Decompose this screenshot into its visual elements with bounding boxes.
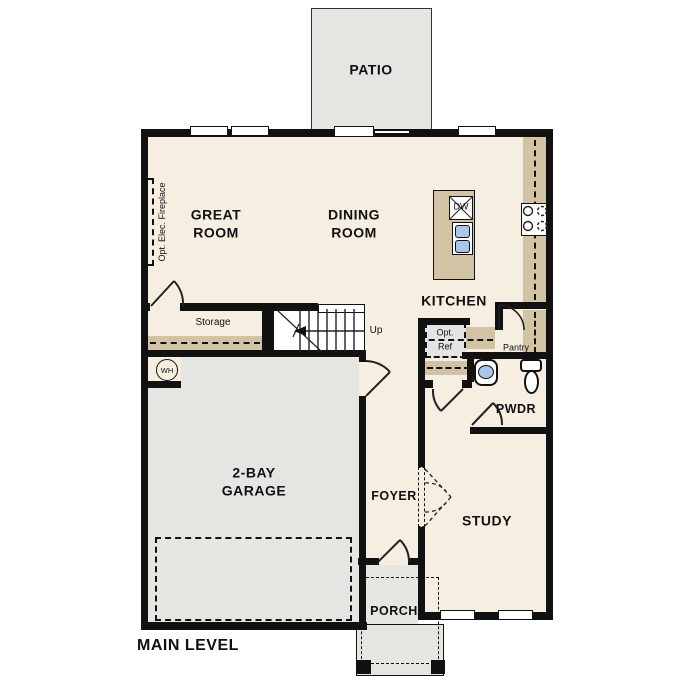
- wall-right: [546, 129, 553, 620]
- wall-hall-right: [418, 318, 425, 430]
- opt-ref-label: Opt. Ref: [436, 326, 453, 355]
- sliding-door-panel: [334, 126, 374, 137]
- wall-segment: [141, 303, 150, 311]
- porch-roofline-dashed: [361, 577, 439, 664]
- water-heater: WH: [156, 359, 178, 381]
- wall-segment: [262, 311, 273, 352]
- wall-segment: [148, 381, 181, 388]
- coat-shelf-rod: [427, 367, 470, 369]
- porch-post: [357, 660, 371, 674]
- storage-label: Storage: [195, 317, 230, 330]
- porch-label: PORCH: [370, 604, 418, 620]
- window: [458, 126, 496, 136]
- mud-counter-dash: [419, 339, 493, 341]
- wall-garage-top: [141, 350, 366, 357]
- wall-segment: [180, 303, 318, 311]
- wall-left: [141, 129, 148, 630]
- staircase: [273, 308, 365, 353]
- stair-rail: [318, 304, 365, 313]
- dishwasher-label: DW: [454, 201, 469, 212]
- garage-label: 2-BAY GARAGE: [222, 465, 286, 500]
- french-door-dashed: [418, 467, 425, 527]
- pwdr-sink-basin: [478, 365, 494, 379]
- wall-segment: [359, 352, 366, 362]
- wall-segment: [462, 380, 472, 388]
- plan-title: MAIN LEVEL: [137, 637, 239, 655]
- wall-segment: [418, 318, 470, 325]
- wall-garage-right: [359, 396, 366, 630]
- porch-post: [431, 660, 445, 674]
- floor-plan: WH: [0, 0, 687, 687]
- pantry-dashline: [534, 312, 536, 353]
- fireplace-label: Opt. Elec. Fireplace: [157, 182, 167, 261]
- window: [190, 126, 228, 136]
- pwdr-label: PWDR: [496, 402, 536, 418]
- mud-counter: [466, 327, 495, 349]
- sink-basin: [455, 240, 470, 253]
- wall-segment: [495, 302, 503, 330]
- wall-garage-bottom: [141, 622, 367, 630]
- pantry-label: Pantry: [503, 342, 529, 353]
- wall-segment: [358, 558, 379, 565]
- up-label: Up: [370, 325, 383, 338]
- wall-segment: [418, 430, 425, 468]
- wall-segment: [423, 380, 433, 388]
- wall-segment: [467, 352, 474, 382]
- wall-study-top: [470, 427, 553, 434]
- window: [231, 126, 269, 136]
- kitchen-label: KITCHEN: [421, 292, 487, 310]
- wall-segment: [418, 527, 425, 620]
- water-heater-label: WH: [161, 366, 174, 375]
- toilet-bowl: [524, 370, 539, 394]
- dining-room-label: DINING ROOM: [328, 207, 380, 242]
- storage-shelf-rod: [150, 342, 260, 344]
- great-room-label: GREAT ROOM: [191, 207, 241, 242]
- patio-label: PATIO: [349, 61, 392, 79]
- cooktop: [521, 203, 548, 236]
- window: [498, 610, 533, 620]
- foyer-label: FOYER: [371, 489, 417, 505]
- sliding-door-panel: [374, 130, 410, 134]
- window: [440, 610, 475, 620]
- sink-basin: [455, 225, 470, 238]
- wall-segment: [495, 302, 553, 309]
- garage-door-dashed: [155, 537, 352, 621]
- study-label: STUDY: [462, 512, 512, 530]
